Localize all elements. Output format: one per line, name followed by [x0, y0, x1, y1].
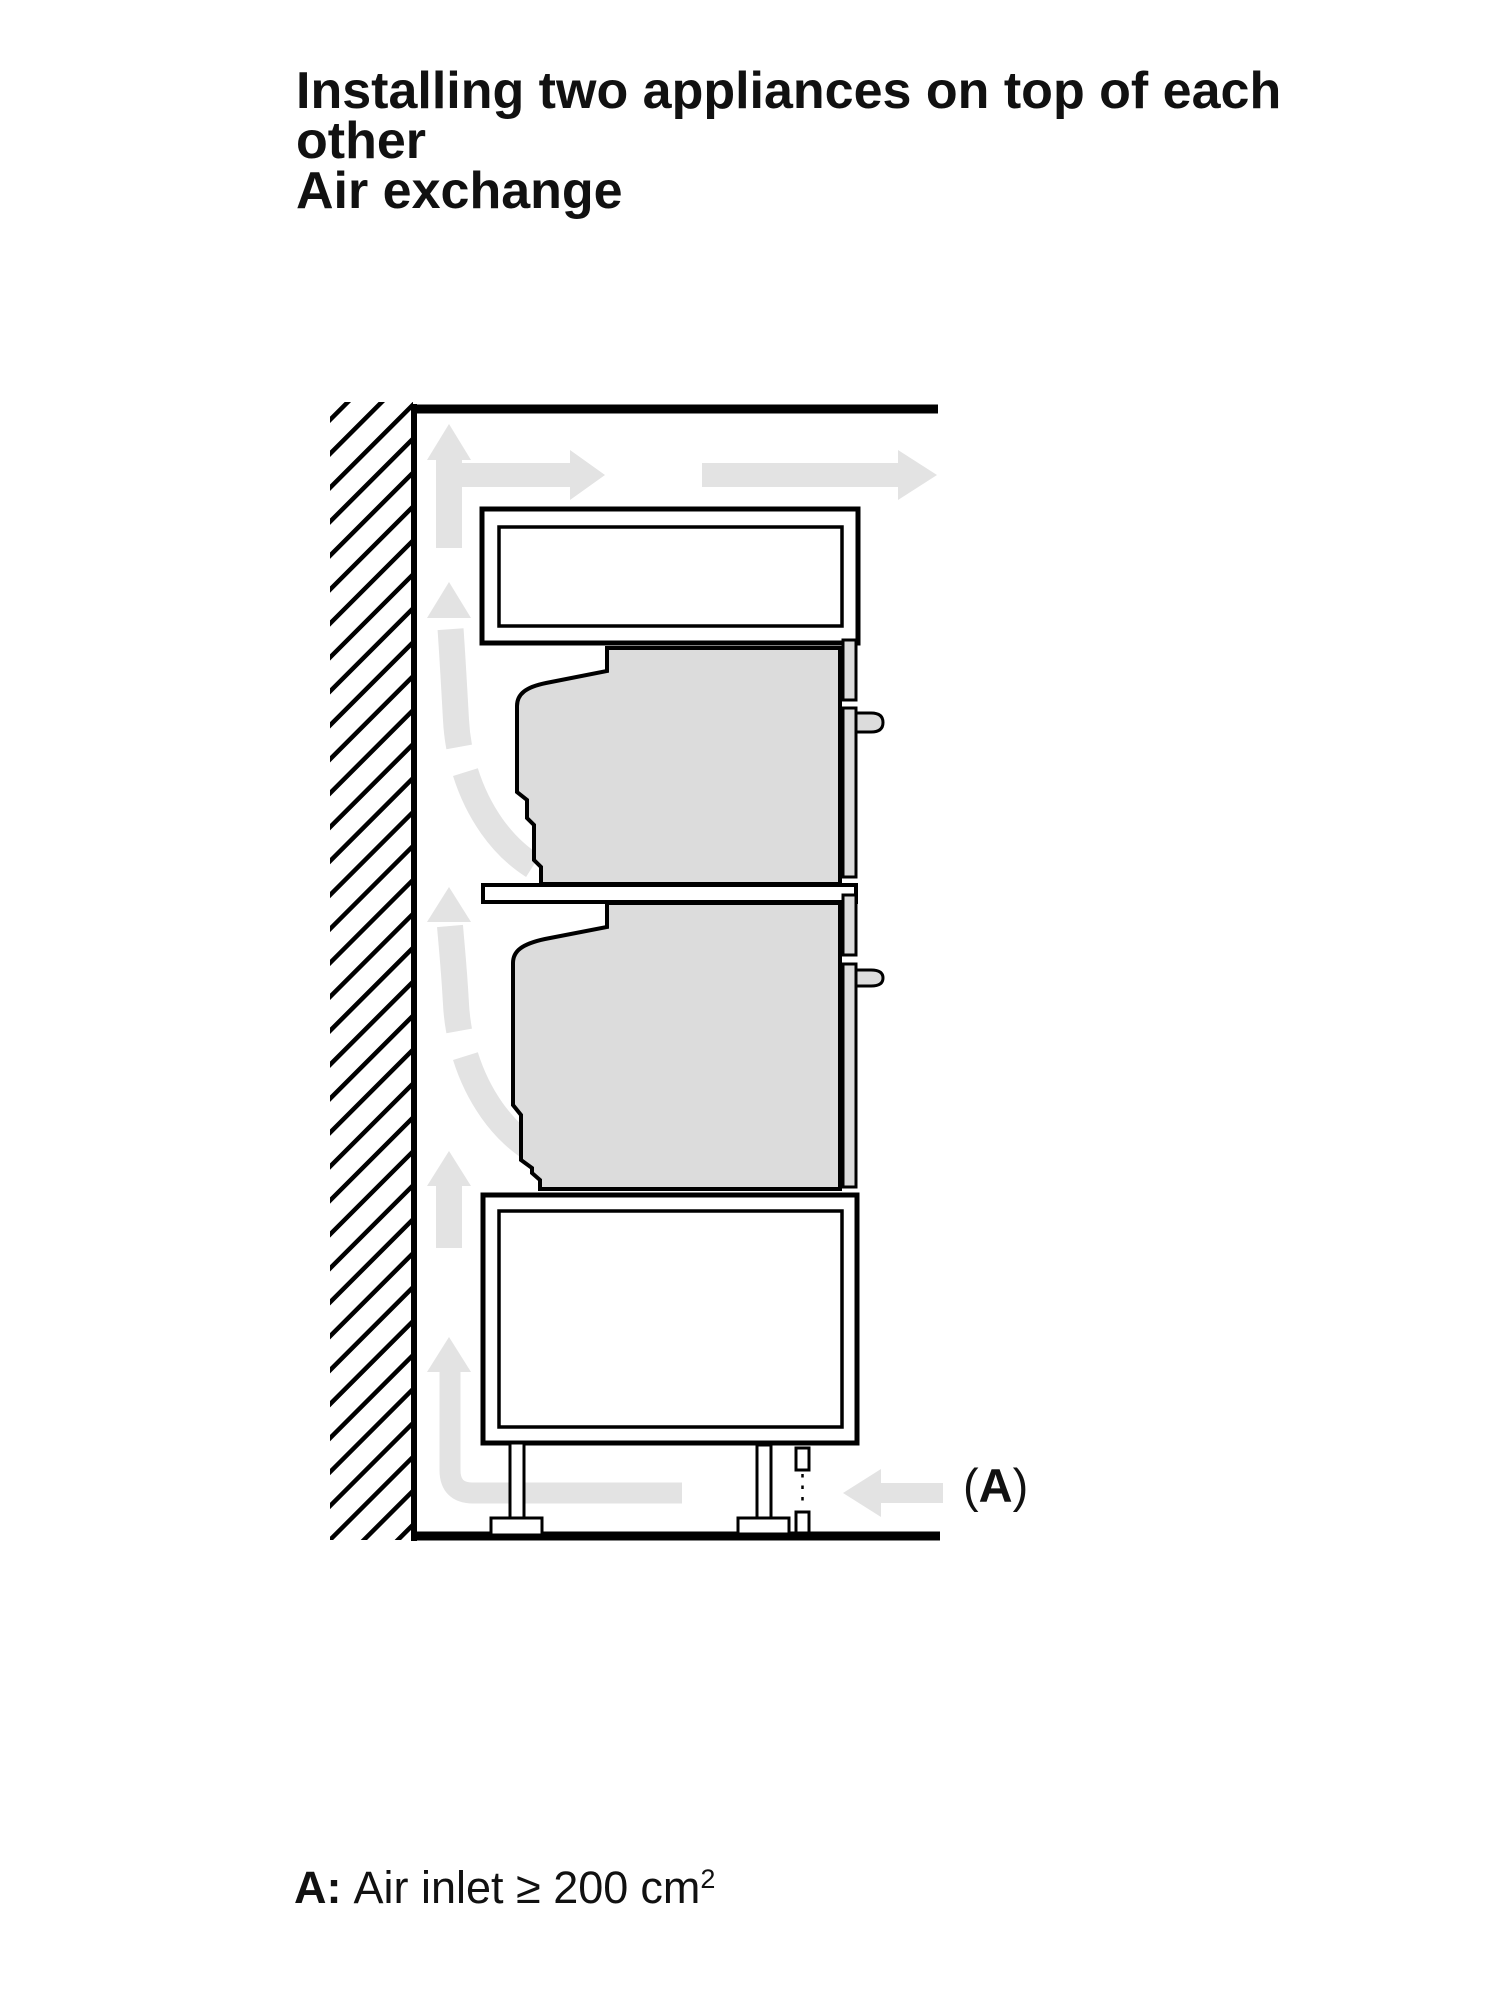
upper-oven [517, 640, 883, 884]
lower-oven-handle [856, 970, 883, 986]
right-arrow-1 [452, 450, 605, 500]
wall-hatching [330, 402, 413, 1540]
manual-page: Installing two appliances on top of each… [0, 0, 1500, 2000]
curved-arrow-lower-head [427, 887, 471, 922]
lower-oven-body [513, 903, 840, 1189]
installation-diagram [0, 0, 1500, 2000]
label-a-letter: A [979, 1459, 1013, 1512]
up-arrow-base [427, 1151, 471, 1248]
caption-text: Air inlet ≥ 200 [353, 1862, 628, 1913]
lower-oven-control-panel [843, 895, 856, 955]
curved-arrow-upper-head [427, 582, 471, 618]
upper-oven-control-panel [843, 640, 856, 700]
vent-compartment-inner [499, 527, 842, 626]
left-leg [510, 1443, 524, 1519]
label-a: (A) [963, 1461, 1028, 1511]
upper-oven-body [517, 648, 840, 884]
plinth-cutout-top-marker [796, 1448, 809, 1470]
upper-oven-handle [856, 713, 883, 732]
right-foot [738, 1518, 789, 1534]
lower-oven [513, 895, 883, 1189]
caption-unit: cm2 [640, 1862, 715, 1913]
vent-compartment [482, 509, 858, 643]
label-a-paren-open: ( [963, 1459, 979, 1512]
inlet-up-arrow-head [427, 1337, 471, 1372]
base-cabinet-inner [499, 1211, 842, 1427]
left-foot [491, 1518, 542, 1535]
air-inlet-arrow [843, 1469, 943, 1517]
lower-oven-door [843, 964, 856, 1187]
right-arrow-2 [702, 450, 937, 500]
caption-label: A: [294, 1862, 341, 1913]
right-leg [757, 1445, 771, 1519]
upper-oven-door [843, 708, 856, 877]
label-a-paren-close: ) [1013, 1459, 1029, 1512]
base-cabinet [483, 1195, 857, 1443]
middle-shelf [483, 885, 856, 902]
caption-superscript: 2 [700, 1864, 715, 1894]
plinth-cutout-bottom-marker [796, 1512, 809, 1533]
caption: A:Air inlet ≥ 200cm2 [294, 1864, 715, 1912]
